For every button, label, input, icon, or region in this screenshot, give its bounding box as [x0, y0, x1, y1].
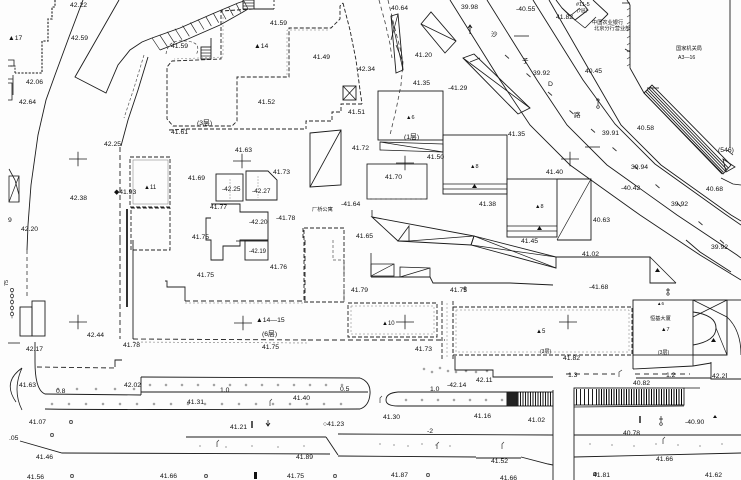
svg-text:41.35: 41.35 [508, 131, 525, 138]
svg-text:北京分行营业部: 北京分行营业部 [594, 24, 630, 32]
svg-text:41.56: 41.56 [27, 474, 44, 480]
svg-text:子: 子 [522, 57, 529, 65]
svg-text:1.0: 1.0 [430, 386, 440, 393]
svg-text:(6层): (6层) [262, 330, 277, 338]
svg-text:1.2: 1.2 [666, 372, 676, 379]
svg-text:41.75: 41.75 [450, 287, 467, 294]
svg-text:◆41.93: ◆41.93 [114, 189, 136, 196]
svg-text:41.16: 41.16 [474, 413, 491, 420]
svg-text:中国农业银行: 中国农业银行 [592, 18, 623, 26]
svg-text:9: 9 [8, 217, 12, 224]
svg-text:41.87: 41.87 [391, 472, 408, 479]
svg-text:41.51: 41.51 [348, 109, 365, 116]
svg-text:41.73: 41.73 [273, 169, 290, 176]
svg-text:41.45: 41.45 [521, 238, 538, 245]
svg-text:D: D [548, 81, 553, 88]
svg-text:41.02: 41.02 [582, 251, 599, 258]
svg-text:▲8: ▲8 [470, 164, 479, 170]
svg-text:.05: .05 [9, 435, 19, 442]
svg-text:40.78: 40.78 [623, 430, 640, 437]
svg-text:41.20: 41.20 [415, 52, 432, 59]
svg-text:40.82: 40.82 [633, 380, 650, 387]
svg-text:▲10: ▲10 [382, 321, 395, 327]
svg-text:-42.27: -42.27 [252, 188, 271, 195]
svg-text:39.98: 39.98 [461, 4, 478, 11]
svg-text:40.68: 40.68 [706, 186, 723, 193]
svg-text:39.94: 39.94 [631, 164, 648, 171]
svg-text:路: 路 [574, 110, 581, 119]
svg-text:42.34: 42.34 [358, 66, 375, 73]
svg-text:▲6: ▲6 [657, 301, 664, 306]
svg-text:-41.29: -41.29 [448, 85, 467, 92]
svg-text:41.63: 41.63 [19, 382, 36, 389]
svg-text:41.52: 41.52 [491, 458, 508, 465]
svg-text:41.73: 41.73 [415, 346, 432, 353]
svg-text:-42.14: -42.14 [447, 382, 466, 389]
svg-text:▲14—15: ▲14—15 [256, 317, 285, 324]
svg-text:42.59: 42.59 [71, 35, 88, 42]
svg-text:41.75: 41.75 [192, 234, 209, 241]
svg-text:41.30: 41.30 [383, 414, 400, 421]
svg-text:42.64: 42.64 [19, 99, 36, 106]
svg-text:▲8: ▲8 [535, 204, 544, 210]
svg-text:42.2Ⅰ: 42.2Ⅰ [712, 373, 727, 380]
svg-text:42.02: 42.02 [124, 382, 141, 389]
svg-text:▲17: ▲17 [8, 35, 23, 42]
svg-text:42.20: 42.20 [21, 226, 38, 233]
svg-text:40.64: 40.64 [391, 5, 408, 12]
svg-text:41.89: 41.89 [296, 454, 313, 461]
svg-text:40.58: 40.58 [637, 125, 654, 132]
svg-text:41.38: 41.38 [479, 201, 496, 208]
svg-text:41.46: 41.46 [36, 454, 53, 461]
svg-text:41.59: 41.59 [270, 20, 287, 27]
svg-text:恒基大厦: 恒基大厦 [650, 314, 671, 322]
svg-text:○41.23: ○41.23 [323, 421, 344, 428]
svg-text:41.21: 41.21 [230, 424, 247, 431]
svg-text:1.3: 1.3 [568, 372, 578, 379]
svg-text:0.8: 0.8 [56, 388, 66, 395]
svg-text:75: 75 [4, 280, 10, 286]
svg-text:41.40: 41.40 [293, 395, 310, 402]
svg-text:(3层): (3层) [540, 349, 551, 355]
svg-text:41.31: 41.31 [187, 399, 204, 406]
svg-text:41.75: 41.75 [197, 272, 214, 279]
svg-text:41.66: 41.66 [656, 456, 673, 463]
svg-text:-41.68: -41.68 [589, 284, 608, 291]
svg-text:国家机关局: 国家机关局 [676, 44, 702, 52]
svg-text:41.50: 41.50 [427, 154, 444, 161]
svg-text:-2: -2 [427, 428, 433, 435]
svg-text:41.69: 41.69 [188, 175, 205, 182]
svg-text:41.62: 41.62 [705, 472, 722, 479]
svg-text:-40.55: -40.55 [516, 6, 535, 13]
svg-text:39.91: 39.91 [602, 130, 619, 137]
svg-text:(1层): (1层) [404, 133, 419, 141]
svg-text:1.0: 1.0 [220, 387, 230, 394]
svg-text:(546): (546) [718, 147, 734, 154]
svg-text:42.25: 42.25 [104, 141, 121, 148]
svg-text:(3层): (3层) [658, 350, 669, 356]
svg-text:-42.25: -42.25 [222, 186, 241, 193]
svg-text:厂桥公寓: 厂桥公寓 [312, 205, 333, 213]
svg-text:41.65: 41.65 [356, 233, 373, 240]
svg-text:41.78: 41.78 [123, 342, 140, 349]
svg-text:39.92: 39.92 [711, 244, 728, 251]
svg-text:41.61: 41.61 [171, 129, 188, 136]
svg-text:41.82: 41.82 [563, 355, 580, 362]
svg-text:42.11: 42.11 [476, 377, 493, 384]
svg-text:▲14: ▲14 [254, 43, 269, 50]
svg-text:41.07: 41.07 [29, 419, 46, 426]
svg-text:41.72: 41.72 [352, 145, 369, 152]
svg-text:42.44: 42.44 [87, 332, 104, 339]
svg-text:40.63: 40.63 [593, 217, 610, 224]
svg-text:-42.19: -42.19 [249, 249, 267, 255]
svg-text:▲7: ▲7 [661, 327, 670, 333]
svg-text:42.22: 42.22 [70, 2, 87, 9]
svg-text:41.70: 41.70 [385, 174, 402, 181]
svg-text:41.66: 41.66 [160, 473, 177, 480]
svg-text:41.59: 41.59 [171, 43, 188, 50]
svg-text:41.75: 41.75 [287, 473, 304, 480]
svg-text:▲6: ▲6 [406, 115, 415, 121]
svg-text:-41.78: -41.78 [276, 215, 295, 222]
svg-text:-41.64: -41.64 [341, 201, 360, 208]
svg-text:41.77: 41.77 [210, 204, 227, 211]
svg-text:41.75: 41.75 [262, 344, 279, 351]
svg-text:41.49: 41.49 [313, 54, 330, 61]
svg-text:-40.42: -40.42 [621, 185, 640, 192]
svg-text:-42.20: -42.20 [249, 219, 268, 226]
svg-text:41.79: 41.79 [351, 287, 368, 294]
svg-text:42.38: 42.38 [70, 195, 87, 202]
svg-text:42.06: 42.06 [26, 79, 43, 86]
svg-text:39.92: 39.92 [533, 70, 550, 77]
svg-text:41.40: 41.40 [546, 169, 563, 176]
svg-text:41.02: 41.02 [528, 417, 545, 424]
svg-text:41.76: 41.76 [270, 264, 287, 271]
svg-text:0.5: 0.5 [340, 386, 350, 393]
svg-text:▲11: ▲11 [144, 185, 157, 191]
svg-text:41.81: 41.81 [593, 472, 610, 479]
svg-text:42.17: 42.17 [26, 346, 43, 353]
svg-text:41.66: 41.66 [500, 475, 517, 480]
svg-text:沙: 沙 [491, 31, 498, 38]
svg-text:41.35: 41.35 [413, 80, 430, 87]
svg-text:39.92: 39.92 [671, 201, 688, 208]
svg-text:40.45: 40.45 [585, 68, 602, 75]
svg-text:A3—16: A3—16 [678, 55, 695, 61]
svg-text:41.82: 41.82 [556, 14, 573, 21]
svg-text:41.63: 41.63 [235, 147, 252, 154]
svg-text:41.52: 41.52 [258, 99, 275, 106]
svg-text:▲5: ▲5 [536, 329, 546, 335]
svg-text:-40.90: -40.90 [685, 419, 704, 426]
svg-text:(3层): (3层) [197, 119, 212, 127]
